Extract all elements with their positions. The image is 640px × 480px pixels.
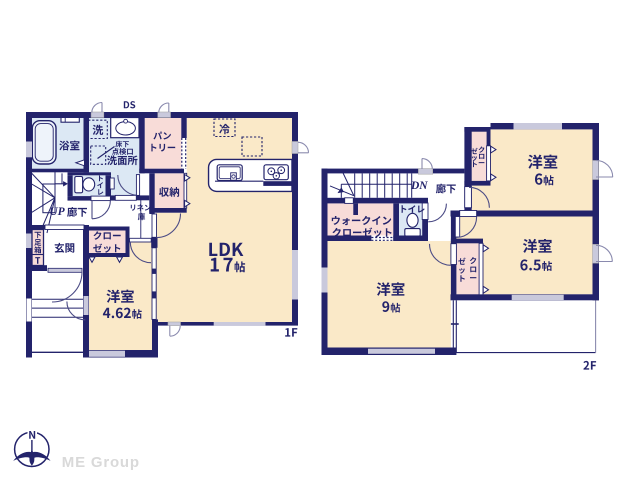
svg-text:UP: UP bbox=[49, 206, 65, 218]
svg-text:DN: DN bbox=[410, 180, 428, 192]
svg-text:ME Group: ME Group bbox=[62, 454, 140, 471]
